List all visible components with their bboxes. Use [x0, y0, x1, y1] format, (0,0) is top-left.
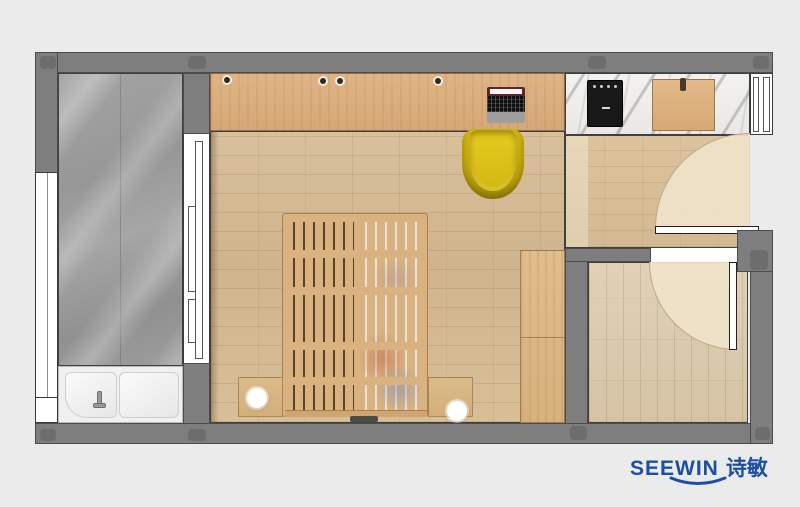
- sliding-door-panel: [195, 141, 203, 359]
- wall-column: [588, 56, 606, 69]
- laptop-screen: [487, 87, 525, 96]
- sliding-door-panel: [188, 206, 196, 292]
- bed-crossband: [287, 342, 425, 350]
- bed-crossband: [287, 250, 425, 258]
- sliding-door: [183, 133, 210, 365]
- logo-brand-cn-text: 诗敏: [726, 452, 768, 482]
- bathtub-basin: [65, 372, 117, 418]
- wardrobe: [520, 250, 565, 423]
- window-left: [35, 172, 58, 398]
- wall-bottom: [35, 423, 773, 444]
- window-left-lower: [35, 397, 58, 423]
- wall-column: [188, 429, 206, 441]
- bathroom-floor: [58, 73, 183, 366]
- wardrobe-divider: [521, 337, 566, 338]
- logo-swoosh-icon: [668, 476, 728, 488]
- wall-column: [40, 429, 56, 441]
- wall-left-upper: [35, 52, 58, 173]
- cooktop-knob-icon: [607, 85, 610, 88]
- desk-knob-icon: [320, 78, 326, 84]
- entry-wall-left: [565, 248, 588, 424]
- platform-bed: [282, 213, 428, 417]
- sliding-door-panel: [188, 299, 196, 343]
- interior-door-leaf: [729, 262, 737, 350]
- laptop: [487, 87, 525, 123]
- cooktop: [587, 80, 623, 127]
- wall-top: [35, 52, 773, 73]
- desk-knob-icon: [337, 78, 343, 84]
- cooktop-knob-icon: [614, 85, 617, 88]
- window-right-panel: [763, 77, 770, 132]
- window-right: [750, 73, 773, 135]
- laptop-screen-panel: [490, 89, 522, 94]
- bed-bench: [350, 416, 378, 422]
- lamp-left: [247, 388, 267, 408]
- wall-column: [188, 56, 206, 69]
- doorway-threshold: [651, 248, 737, 262]
- desk-knob-icon: [224, 77, 230, 83]
- laptop-palmrest: [487, 112, 525, 123]
- cutting-board: [652, 79, 715, 131]
- bathtub-deck: [119, 372, 179, 418]
- floor-shadow: [211, 132, 219, 422]
- window-left-mullion: [47, 173, 48, 399]
- wall-column: [753, 56, 769, 69]
- kitchen-corridor-strip: [566, 136, 588, 247]
- cooktop-knob-icon: [600, 85, 603, 88]
- wall-column: [40, 56, 56, 69]
- laptop-keyboard: [487, 96, 525, 112]
- cooktop-knob-icon: [593, 85, 596, 88]
- desk-chair-seat: [470, 130, 516, 191]
- desk-chair: [462, 129, 524, 199]
- bed-crossband: [287, 377, 425, 385]
- wall-partition-top: [183, 73, 210, 134]
- wall-column: [570, 426, 587, 440]
- floor-plan: SEEWIN 诗敏: [0, 0, 800, 507]
- bed-crossband: [287, 287, 425, 295]
- bathtub: [58, 366, 183, 423]
- window-right-panel: [753, 77, 759, 132]
- wall-column: [755, 427, 770, 440]
- desk-knob-icon: [435, 78, 441, 84]
- cutting-board-handle-icon: [680, 78, 686, 91]
- lamp-right: [447, 401, 467, 421]
- entry-wall-top: [565, 248, 651, 262]
- cooktop-display-icon: [602, 107, 610, 109]
- wall-column: [750, 250, 768, 270]
- wall-partition-bottom: [183, 363, 210, 424]
- bathtub-faucet-handle-icon: [93, 403, 106, 408]
